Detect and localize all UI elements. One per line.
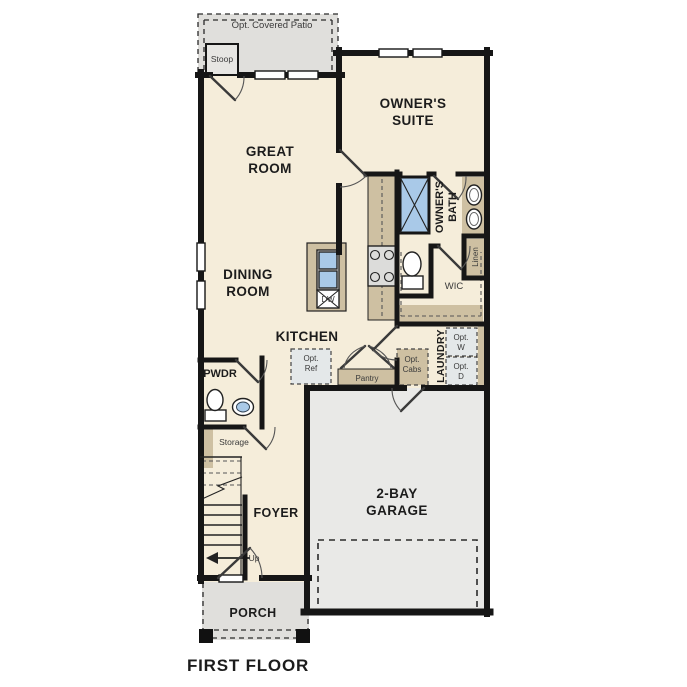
pantry-label: Pantry (355, 374, 378, 383)
pwdr-sink-basin (237, 402, 250, 412)
plan-title: FIRST FLOOR (187, 656, 309, 675)
great-room-window-2 (288, 71, 318, 79)
great-room-window-1 (255, 71, 285, 79)
owners-suite-window-2 (413, 49, 442, 57)
opt-washer-label-2: W (457, 343, 465, 352)
owners-suite-label-2: SUITE (392, 113, 434, 128)
opt-cabs-label-2: Cabs (403, 365, 422, 374)
owners-bath-label-2: BATH (447, 192, 459, 222)
dining-room-label-2: ROOM (226, 284, 270, 299)
kitchen-sink-basin-2 (319, 271, 337, 288)
opt-ref-label-2: Ref (305, 364, 318, 373)
laundry-label-group: LAUNDRY (435, 329, 447, 383)
opt-dryer-label-2: D (458, 372, 464, 381)
entry-sidelite (219, 575, 243, 582)
kitchen-counter-run (368, 176, 396, 320)
dw-label: DW (321, 295, 335, 304)
kitchen-sink-basin-1 (319, 252, 337, 269)
laundry-label: LAUNDRY (435, 329, 447, 383)
linen-label-group: Linen (471, 247, 480, 267)
opt-ref-label-1: Opt. (303, 354, 318, 363)
great-room-label-2: ROOM (248, 161, 292, 176)
owners-suite-window-1 (379, 49, 408, 57)
wic-label: WIC (445, 281, 464, 292)
opt-washer-label-1: Opt. (453, 333, 468, 342)
owners-bath-label-1: OWNER'S (434, 181, 446, 233)
toilet-bowl (403, 252, 421, 276)
garage-label-2: GARAGE (366, 503, 428, 518)
floor-plan-page: Opt. Covered Patio Stoop GREAT ROOM OWNE… (0, 0, 687, 687)
pwdr-toilet-tank (205, 410, 226, 421)
dining-window-2 (197, 281, 205, 309)
patio-label: Opt. Covered Patio (232, 20, 313, 31)
opt-cabs-label-1: Opt. (404, 355, 419, 364)
owners-suite-label-1: OWNER'S (380, 96, 447, 111)
pwdr-toilet-bowl (207, 390, 223, 411)
toilet-tank (402, 276, 423, 289)
pwdr-label: PWDR (203, 368, 237, 380)
dining-room-label-1: DINING (223, 267, 273, 282)
linen-label: Linen (471, 247, 480, 267)
storage-label: Storage (219, 437, 249, 447)
stoop-label: Stoop (211, 54, 233, 64)
dining-window-1 (197, 243, 205, 271)
porch-post-right (296, 629, 310, 643)
opt-dryer-label-1: Opt. (453, 362, 468, 371)
great-room-label-1: GREAT (246, 144, 295, 159)
foyer-label: FOYER (253, 506, 298, 520)
first-floor-plan: Opt. Covered Patio Stoop GREAT ROOM OWNE… (0, 0, 687, 687)
up-label: Up (249, 553, 260, 563)
kitchen-label: KITCHEN (276, 329, 339, 344)
porch-post-left (199, 629, 213, 643)
wic-shelf-band (399, 305, 483, 322)
porch-label: PORCH (229, 606, 276, 620)
garage-label-1: 2-BAY (376, 486, 417, 501)
